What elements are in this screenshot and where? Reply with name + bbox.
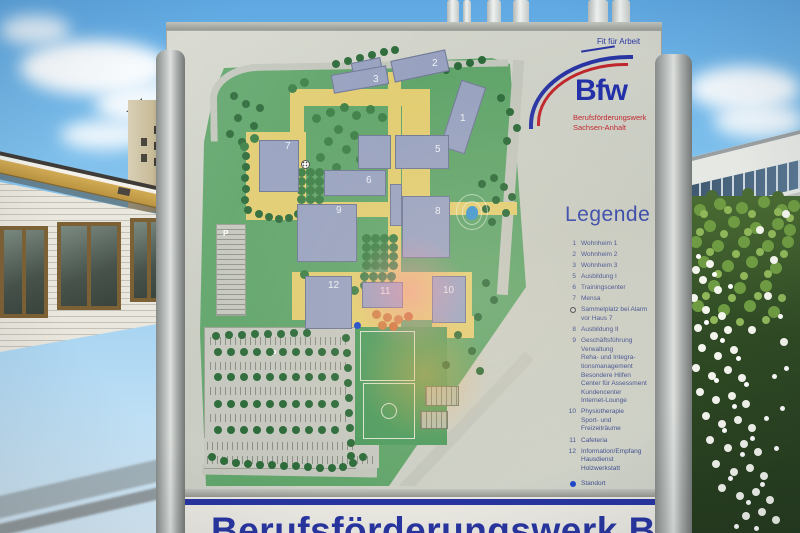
assembly-point-icon — [565, 306, 576, 323]
parking-hatch — [210, 387, 350, 395]
legend-item-label: Ausbildung I — [581, 273, 617, 282]
legend-item: 10Physiotherapie Sport- und Freizeiträum… — [565, 408, 661, 434]
legend-item-number: 3 — [565, 262, 576, 271]
legend-item-number: 8 — [565, 326, 576, 335]
map-building-6 — [324, 170, 386, 196]
legend-item: 9Geschäftsführung Verwaltung Reha- und I… — [565, 337, 661, 406]
map-parking-strip — [216, 224, 246, 316]
building-number-label: 1 — [460, 114, 466, 124]
logo-arrow-line — [581, 45, 615, 52]
legend-item-label: Wohnheim 3 — [581, 262, 617, 271]
legend-item-label: Cafeteria — [581, 437, 607, 446]
parking-hatch — [210, 337, 350, 345]
parking-p-label: P — [223, 230, 228, 238]
cloud — [714, 103, 800, 138]
legend-item: 5Ausbildung I — [565, 273, 661, 282]
logo-tagline: Fit für Arbeit — [597, 37, 640, 46]
legend-item-number: 9 — [565, 337, 576, 406]
parking-hatch — [207, 456, 377, 464]
cloud — [0, 15, 70, 45]
sign-right-post — [655, 54, 692, 533]
legend-item-label: Standort — [581, 480, 606, 489]
parking-p-label: P — [271, 350, 276, 358]
flower-bushes — [684, 196, 800, 533]
legend-item-label: Physiotherapie Sport- und Freizeiträume — [581, 408, 624, 434]
legend-item: 6Trainingscenter — [565, 284, 661, 293]
building-number-label: 2 — [432, 59, 438, 69]
building-number-label: 7 — [285, 142, 291, 152]
site-map: P P 1 2 3 5 6 7 8 9 — [192, 34, 562, 486]
logo-org-line1: Berufsförderungswerk — [573, 113, 646, 122]
tower-windows — [141, 122, 147, 130]
building-number-label: 8 — [435, 207, 441, 217]
location-dot — [354, 322, 361, 329]
legend-item-number: 2 — [565, 251, 576, 260]
legend-item-number: 6 — [565, 284, 576, 293]
map-building-7 — [259, 140, 299, 192]
building-number-label: 5 — [435, 145, 441, 155]
building-number-label: 12 — [328, 281, 339, 291]
legend-item-number: 5 — [565, 273, 576, 282]
legend-item-label: Mensa — [581, 295, 601, 304]
legend-item: Sammelplatz bei Alarm vor Haus 7 — [565, 306, 661, 323]
legend-item-label: Ausbildung II — [581, 326, 619, 335]
footer-blue-line — [183, 499, 655, 505]
legend-item: 12Information/Empfang Hausdienst Holzwer… — [565, 448, 661, 474]
location-dot-icon — [565, 480, 576, 489]
footer-text: Berufsförderungswerk Bfw — [211, 510, 655, 533]
legend-item: 1Wohnheim 1 — [565, 240, 661, 249]
autumn-tree-cluster — [192, 34, 201, 43]
legend-item-label: Trainingscenter — [581, 284, 626, 293]
building-number-label: 9 — [336, 206, 342, 216]
legend: 1Wohnheim 1 2Wohnheim 2 3Wohnheim 3 5Aus… — [565, 240, 661, 491]
legend-item-label: Wohnheim 1 — [581, 240, 617, 249]
parking-hatch — [210, 362, 350, 370]
legend-item: 2Wohnheim 2 — [565, 251, 661, 260]
legend-item-number: 11 — [565, 437, 576, 446]
legend-item-number: 1 — [565, 240, 576, 249]
legend-item: 8Ausbildung II — [565, 326, 661, 335]
building-number-label: 6 — [366, 176, 372, 186]
legend-item-number: 7 — [565, 295, 576, 304]
sign-left-post — [156, 50, 185, 533]
bfw-logo: Fit für Arbeit Bfw Berufsförderungswerk … — [523, 33, 663, 138]
parking-hatch — [207, 442, 357, 450]
legend-item-label: Information/Empfang Hausdienst Holzwerks… — [581, 448, 641, 474]
legend-item: 7Mensa — [565, 295, 661, 304]
photo-of-campus-map-sign: P P 1 2 3 5 6 7 8 9 — [0, 0, 800, 533]
map-building — [390, 184, 402, 226]
window-mullion — [22, 230, 26, 314]
window-mullion — [87, 226, 91, 306]
building-number-label: 3 — [373, 75, 379, 85]
legend-item-label: Geschäftsführung Verwaltung Reha- und In… — [581, 337, 647, 406]
legend-item-number: 12 — [565, 448, 576, 474]
window — [0, 226, 48, 318]
logo-org-line2: Sachsen-Anhalt — [573, 123, 626, 132]
glare-overlay — [360, 310, 490, 440]
legend-item: Standort — [565, 480, 661, 489]
legend-item-label: Sammelplatz bei Alarm vor Haus 7 — [581, 306, 647, 323]
legend-item: 3Wohnheim 3 — [565, 262, 661, 271]
legend-item-number: 10 — [565, 408, 576, 434]
legend-item-label: Wohnheim 2 — [581, 251, 617, 260]
assembly-point-marker — [301, 160, 310, 169]
logo-brand: Bfw — [575, 77, 627, 105]
footer-panel: Berufsförderungswerk Bfw — [183, 497, 655, 533]
window — [57, 222, 121, 310]
map-pond — [466, 206, 478, 220]
legend-item: 11Cafeteria — [565, 437, 661, 446]
parking-hatch — [210, 414, 350, 422]
window-mullion — [147, 222, 151, 298]
map-building — [358, 135, 391, 169]
map-building-9 — [297, 204, 357, 262]
legend-title: Legende — [565, 203, 650, 227]
